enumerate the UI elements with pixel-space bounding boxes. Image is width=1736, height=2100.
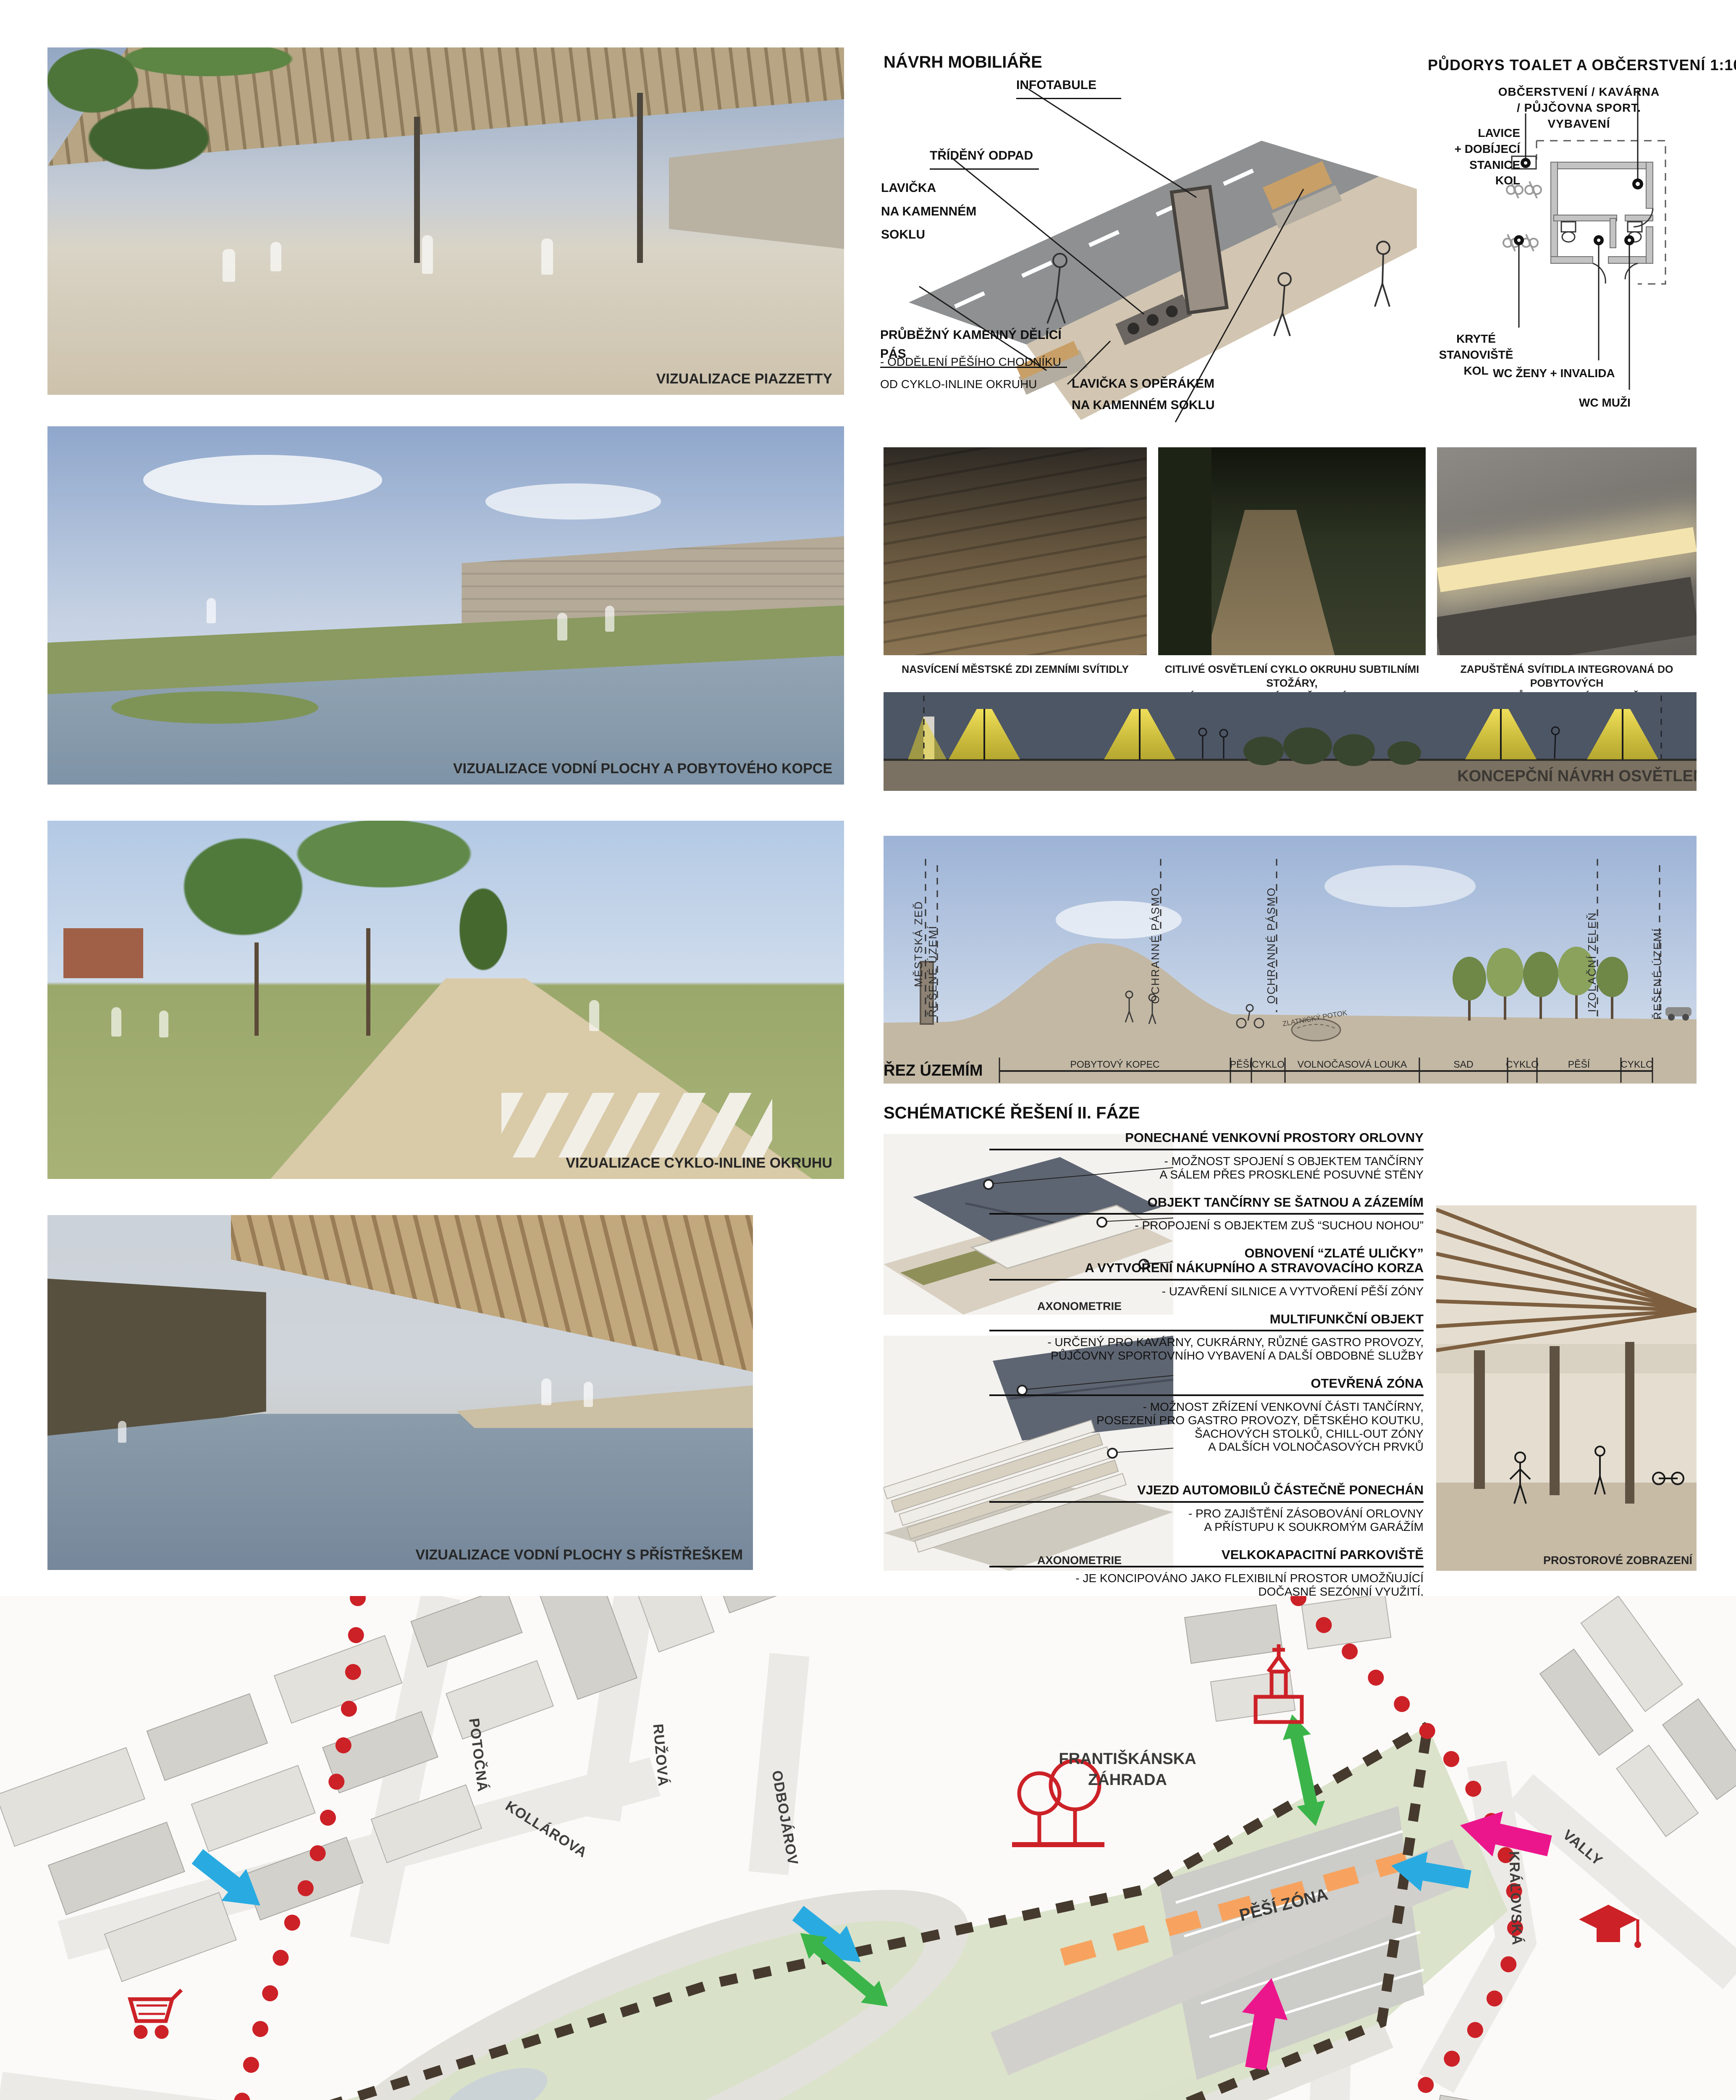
furniture-diagram-title: NÁVRH MOBILIÁŘE — [884, 53, 1042, 71]
canopy-column — [637, 93, 643, 263]
section-drawing: MĚSTSKÁ ZEĎ ŘEŠENÉ ÚZEMÍ OCHRANNÉ PÁSMO … — [884, 836, 1697, 1084]
tree-canopy — [127, 821, 541, 1029]
site-plan-map: .b1{fill:#e3e1dc;stroke:#b0aeaa;stroke-w… — [0, 1596, 1736, 2100]
cloud — [485, 483, 661, 519]
schematic-block: VJEZD AUTOMOBILŮ ČÁSTEČNĚ PONECHÁN - PRO… — [989, 1483, 1424, 1534]
poster-board: VIZUALIZACE PIAZZETTY VIZUALIZACE VODNÍ … — [0, 0, 1736, 2100]
svg-text:CYKLO: CYKLO — [1252, 1059, 1285, 1070]
street-kralovska: KRÁĽOVSKÁ — [1506, 1851, 1525, 1946]
tree-trunk — [254, 942, 259, 1036]
spatial-view-caption: PROSTOROVÉ ZOBRAZENÍ — [1533, 1554, 1692, 1567]
tree-trunk — [366, 928, 370, 1036]
svg-text:PĚŠÍ: PĚŠÍ — [1568, 1058, 1590, 1070]
label-lavicka: LAVIČKA NA KAMENNÉM SOKLU — [881, 176, 976, 247]
label-obcerstveni: OBČERSTVENÍ / KAVÁRNA / PŮJČOVNA SPORT. … — [1491, 84, 1667, 131]
lighting-panel-caption: KONCEPČNÍ NÁVRH OSVĚTLENÍ — [1457, 766, 1697, 785]
svg-text:ŘEŠENÉ ÚZEMÍ: ŘEŠENÉ ÚZEMÍ — [1651, 928, 1664, 1020]
schematic-block: OBJEKT TANČÍRNY SE ŠATNOU A ZÁZEMÍM - PR… — [989, 1195, 1424, 1233]
svg-text:CYKLO: CYKLO — [1621, 1059, 1653, 1070]
svg-text:SAD: SAD — [1453, 1059, 1473, 1070]
cloud — [143, 455, 382, 505]
section-panel: MĚSTSKÁ ZEĎ ŘEŠENÉ ÚZEMÍ OCHRANNÉ PÁSMO … — [884, 836, 1697, 1084]
schematic-block: PONECHANÉ VENKOVNÍ PROSTORY ORLOVNY - MO… — [989, 1131, 1424, 1181]
svg-text:POBYTOVÝ KOPEC: POBYTOVÝ KOPEC — [1070, 1059, 1159, 1070]
svg-text:ŘEŠENÉ ÚZEMÍ: ŘEŠENÉ ÚZEMÍ — [926, 925, 939, 1017]
schematic-block: OBNOVENÍ “ZLATÉ ULIČKY” A VYTVOŘENÍ NÁKU… — [989, 1246, 1424, 1298]
label-lavicka-operadlo: LAVIČKA S OPĚRÁKEM NA KAMENNÉM SOKLU — [1072, 373, 1215, 416]
section-title: ŘEZ ÚZEMÍM — [884, 1062, 983, 1080]
label-delici-pas-sub: - ODDĚLENÍ PĚŠÍHO CHODNÍKU OD CYKLO-INLI… — [880, 351, 1061, 395]
garden-label: FRANTIŠKÁNSKA — [1059, 1749, 1196, 1768]
viz-caption: VIZUALIZACE CYKLO-INLINE OKRUHU — [566, 1155, 832, 1171]
photo-lit-path — [1158, 447, 1426, 655]
schematic-block: OTEVŘENÁ ZÓNA - MOŽNOST ZŘÍZENÍ VENKOVNÍ… — [989, 1376, 1424, 1454]
svg-text:MĚSTSKÁ ZEĎ: MĚSTSKÁ ZEĎ — [912, 901, 925, 987]
svg-text:VOLNOČASOVÁ LOUKA: VOLNOČASOVÁ LOUKA — [1298, 1058, 1407, 1070]
schematic-block: MULTIFUNKČNÍ OBJEKT - URČENÝ PRO KAVÁRNY… — [989, 1312, 1424, 1363]
photo-lit-steps — [1437, 447, 1697, 655]
garden-label: ZÁHRADA — [1088, 1770, 1167, 1789]
floorplan-panel: PŮDORYS TOALET A OBČERSTVENÍ 1:100 OBČER… — [1428, 50, 1736, 449]
lighting-concept-drawing: KONCEPČNÍ NÁVRH OSVĚTLENÍ — [884, 692, 1697, 791]
label-lavice: LAVICE + DOBÍJECÍ STANICE KOL — [1445, 125, 1520, 189]
svg-text:IZOLAČNÍ ZELEŇ: IZOLAČNÍ ZELEŇ — [1586, 912, 1598, 1012]
floorplan-title: PŮDORYS TOALET A OBČERSTVENÍ 1:100 — [1428, 54, 1736, 76]
viz-caption: VIZUALIZACE VODNÍ PLOCHY A POBYTOVÉHO KO… — [453, 761, 832, 777]
visualization-cyklo-okruh: VIZUALIZACE CYKLO-INLINE OKRUHU — [47, 821, 844, 1179]
lighting-photo-caption: NASVÍCENÍ MĚSTSKÉ ZDI ZEMNÍMI SVÍTIDLY — [884, 663, 1147, 677]
label-wc-zeny: WC ŽENY + INVALIDA — [1493, 365, 1615, 382]
svg-text:CYKLO: CYKLO — [1506, 1059, 1539, 1070]
label-wc-muzi: WC MUŽI — [1579, 394, 1631, 412]
viz-caption: VIZUALIZACE PIAZZETTY — [656, 371, 832, 387]
schematic-title: SCHÉMATICKÉ ŘEŠENÍ II. FÁZE — [884, 1104, 1140, 1123]
visualization-vodni-plocha-kopec: VIZUALIZACE VODNÍ PLOCHY A POBYTOVÉHO KO… — [47, 426, 844, 785]
canopy-column — [414, 117, 420, 262]
svg-text:PĚŠÍ: PĚŠÍ — [1230, 1058, 1252, 1070]
crosswalk-stripes — [501, 1093, 772, 1158]
pergola-spatial-view — [1436, 1205, 1697, 1571]
svg-text:OCHRANNÉ PÁSMO: OCHRANNÉ PÁSMO — [1265, 887, 1277, 1004]
viz-caption: VIZUALIZACE VODNÍ PLOCHY S PŘÍSTŘEŠKEM — [415, 1547, 743, 1563]
island — [111, 691, 318, 724]
foliage — [47, 47, 366, 207]
visualization-piazzetta: VIZUALIZACE PIAZZETTY — [47, 47, 844, 395]
label-trideny-odpad: TŘÍDĚNÝ ODPAD — [930, 146, 1039, 170]
visualization-vodni-plocha-pristresek: VIZUALIZACE VODNÍ PLOCHY S PŘÍSTŘEŠKEM — [47, 1215, 753, 1570]
svg-text:OCHRANNÉ PÁSMO: OCHRANNÉ PÁSMO — [1149, 887, 1162, 1004]
label-infotabule: INFOTABULE — [1016, 76, 1121, 99]
photo-lit-wall — [884, 447, 1147, 655]
furniture-diagram-panel: NÁVRH MOBILIÁŘE INFOTABULE TŘÍDĚNÝ ODPAD… — [884, 50, 1417, 449]
lighting-concept-panel: KONCEPČNÍ NÁVRH OSVĚTLENÍ — [884, 692, 1697, 791]
